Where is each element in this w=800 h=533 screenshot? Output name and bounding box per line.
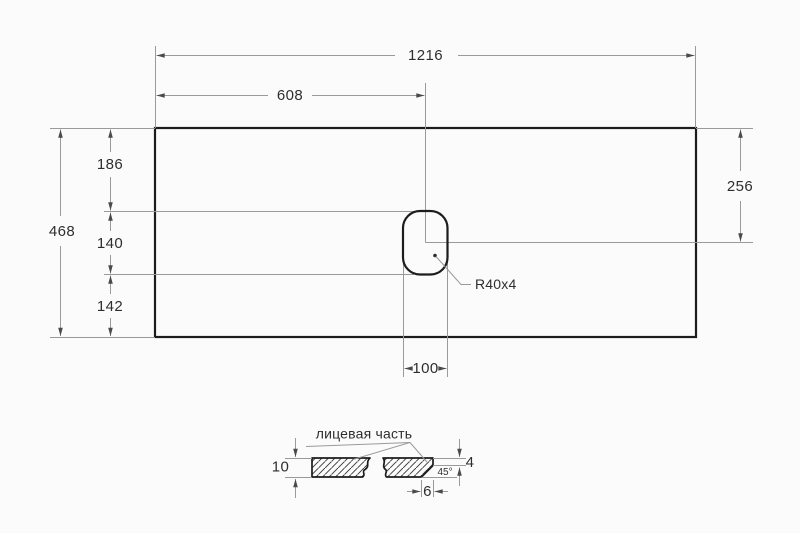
technical-drawing: 1216 608 468 186 140 142: [0, 0, 800, 533]
top-view: 1216 608 468 186 140 142: [49, 46, 753, 377]
dim-hole-width: 100: [405, 360, 447, 377]
dim-edge-height: 4: [433, 439, 474, 486]
face-label: лицевая часть: [316, 426, 413, 442]
hole-radius-callout: R40x4: [433, 254, 516, 292]
dim-total-height-label: 468: [49, 223, 75, 240]
dim-thickness: 10: [272, 438, 312, 498]
dim-hole-height-label: 140: [97, 235, 123, 252]
chamfer-angle-label: 45°: [438, 467, 453, 478]
dim-hole-to-bottom: 142: [97, 276, 123, 337]
dim-center-offset-label: 608: [277, 87, 303, 104]
hole-radius-label: R40x4: [475, 276, 516, 292]
dim-chamfer-width-label: 6: [423, 483, 432, 500]
dim-right-to-hole-center: 256: [727, 130, 753, 242]
dim-top-to-hole: 186: [97, 130, 123, 211]
dim-hole-height: 140: [97, 213, 123, 274]
dim-hole-to-bottom-label: 142: [97, 298, 123, 315]
dim-total-width: 1216: [157, 47, 695, 64]
section-view: лицевая часть 10 4 45°: [272, 426, 475, 501]
section-left-piece: [312, 458, 370, 477]
dim-total-width-label: 1216: [408, 47, 443, 64]
dim-total-height: 468: [49, 130, 75, 337]
dim-thickness-label: 10: [272, 459, 290, 476]
dim-top-to-hole-label: 186: [97, 156, 123, 173]
dim-hole-width-label: 100: [412, 360, 438, 377]
dim-right-to-hole-center-label: 256: [727, 178, 753, 195]
dim-chamfer-width: 6: [407, 480, 448, 500]
dim-edge-height-label: 4: [466, 454, 475, 471]
face-label-callout: лицевая часть: [306, 426, 427, 463]
dim-center-offset: 608: [157, 87, 425, 104]
